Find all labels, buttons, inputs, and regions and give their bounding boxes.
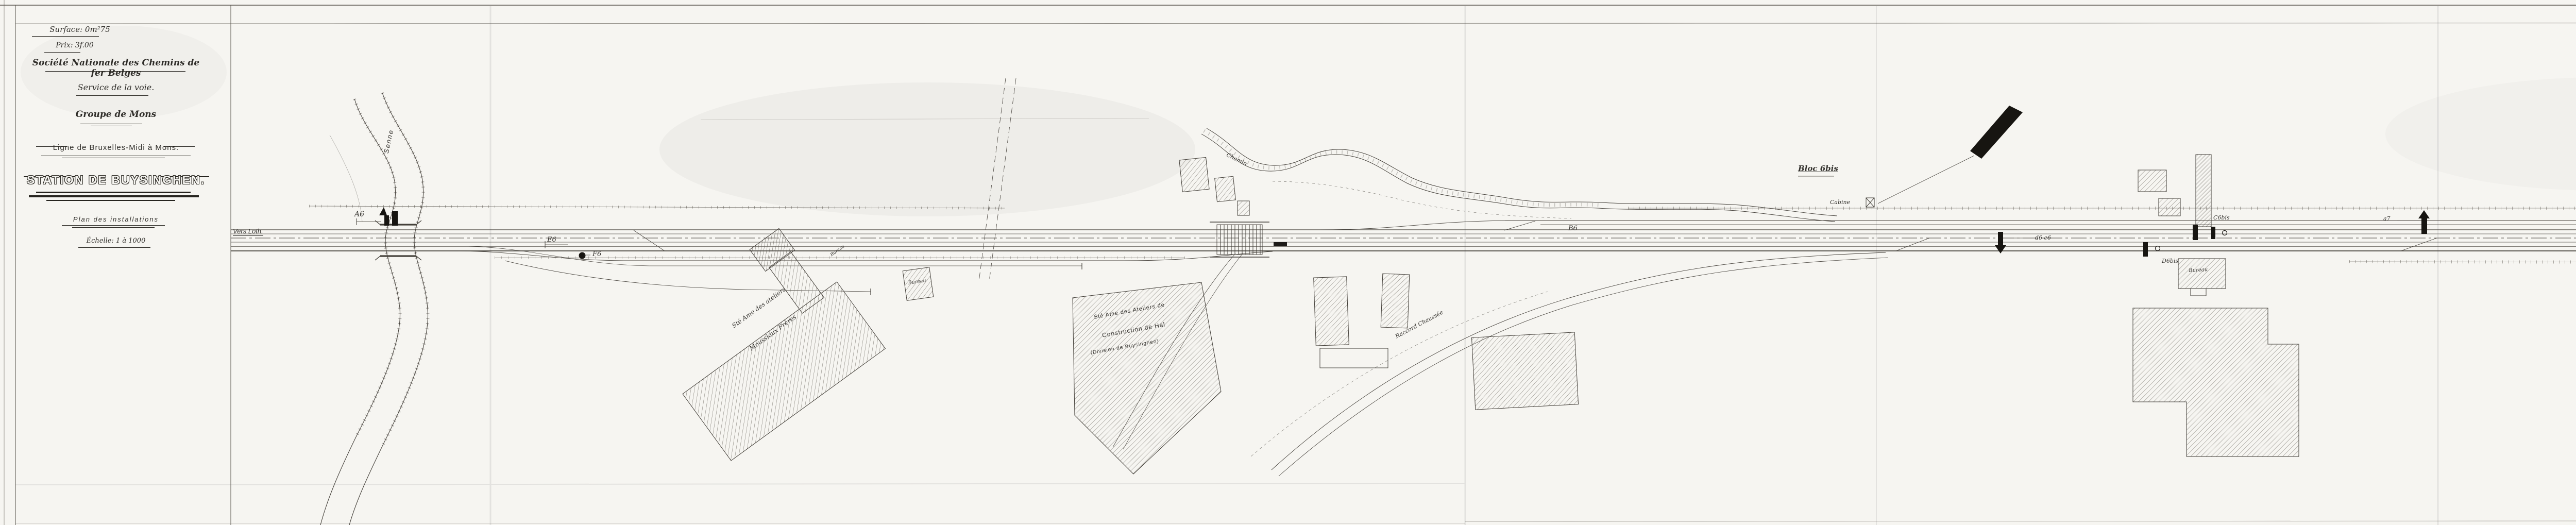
bloc6bis-label: Bloc 6bis (1798, 164, 1838, 173)
river-senne (320, 93, 428, 525)
signal-label-b6: B6 (1568, 225, 1578, 232)
signal-label-d6e6: d6 e6 (2035, 234, 2051, 241)
station-title: STATION DE BUYSINGHEN. (21, 173, 211, 187)
plan-sheet: Surface: 0m²75 Prix: 3f.00 Société Natio… (0, 0, 2576, 525)
group-title: Groupe de Mons (31, 109, 201, 120)
surface-note: Surface: 0m²75 (28, 25, 131, 34)
price-note: Prix: 3f.00 (36, 41, 113, 49)
scale-note: Échelle: 1 à 1000 (52, 237, 180, 245)
company-title: Société Nationale des Chemins de fer Bel… (31, 58, 201, 78)
signal-label-e6: E6 (547, 236, 556, 244)
cabine-symbol (357, 176, 2576, 260)
plan-linework (0, 0, 2576, 525)
signal-label-c6bis: C6bis (2213, 214, 2230, 221)
direction-vers-loth: Vers Loth. (233, 227, 263, 236)
bureau3-label: Bureau (2189, 267, 2208, 274)
scan-smudges (21, 26, 2576, 216)
signal-label-d6bis: D6bis (2162, 258, 2178, 264)
signal-label-a7-small: a7 (2383, 215, 2391, 222)
line-title: Ligne de Bruxelles-Midi à Mons. (26, 143, 206, 152)
signal-label-a6: A6 (354, 210, 364, 218)
service-title: Service de la voie. (31, 82, 201, 92)
level-crossing (1210, 222, 1287, 257)
signal-label-f6: F6 (592, 250, 601, 258)
plan-subtitle: Plan des installations (36, 215, 196, 223)
cabine6-label: Cabine (1830, 199, 1850, 206)
roads (979, 61, 2576, 525)
